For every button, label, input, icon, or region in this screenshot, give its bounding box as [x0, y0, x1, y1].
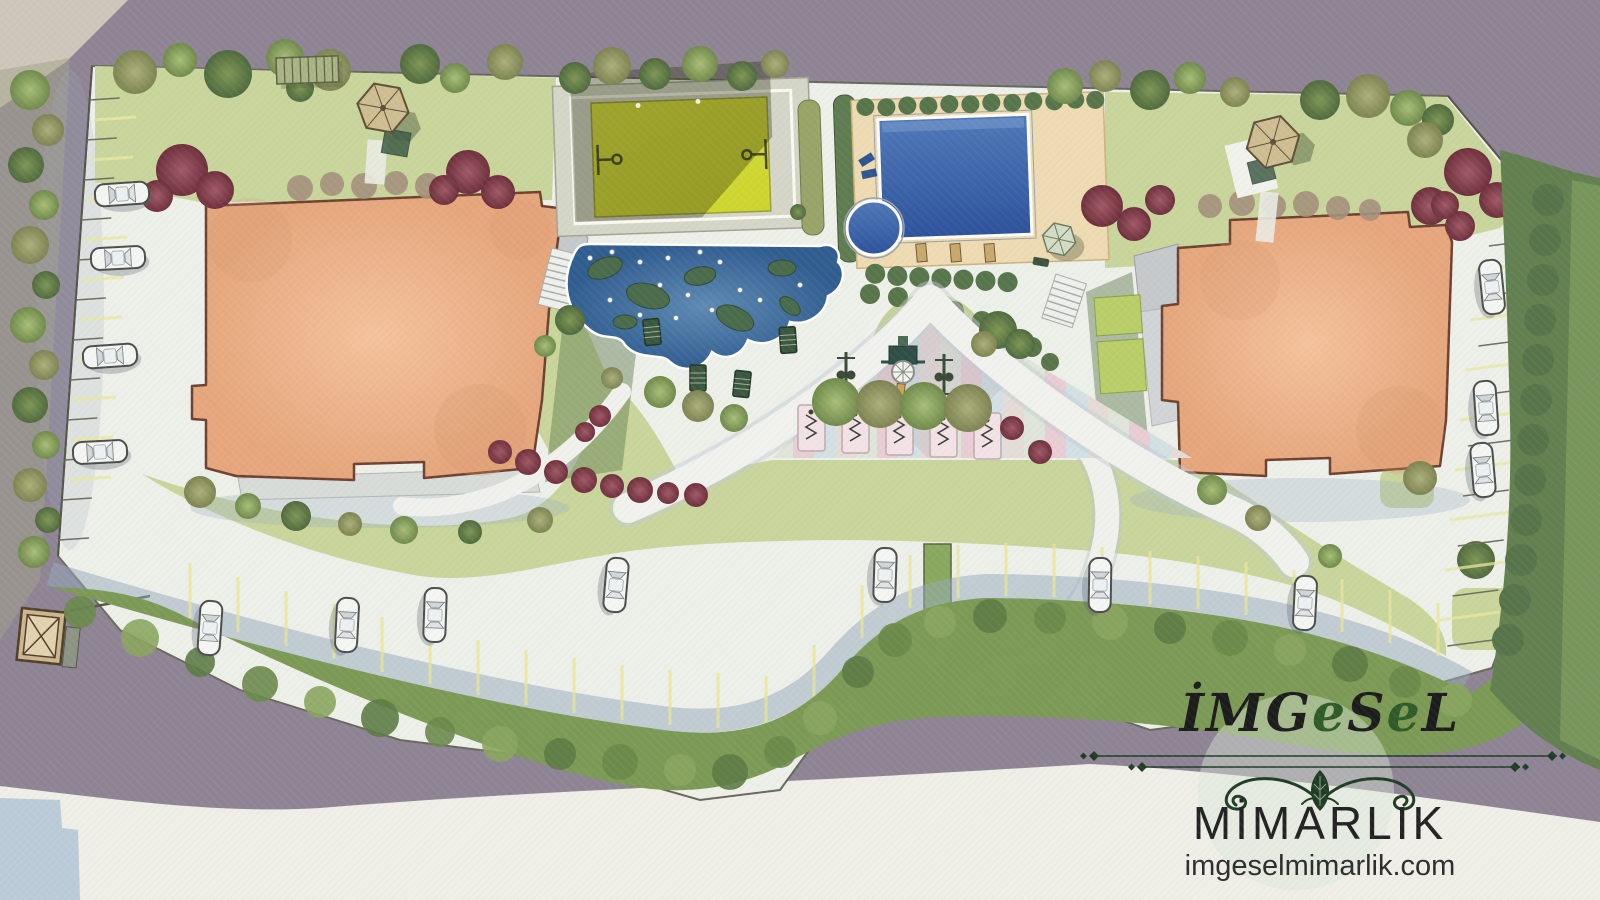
logo-title-part: İMG	[1180, 683, 1312, 744]
logo-title-part: S	[1347, 683, 1387, 744]
firm-logo: İMGeSeL MİMARLIK imgeselmimarlik.com	[1040, 688, 1600, 900]
site-plan-canvas: İMGeSeL MİMARLIK imgeselmimarlik.com	[0, 0, 1600, 900]
kids-pool	[844, 198, 904, 258]
logo-title: İMGeSeL	[1040, 688, 1600, 740]
pergola	[276, 56, 343, 89]
logo-title-part: e	[1312, 683, 1347, 744]
logo-title-part: L	[1422, 683, 1461, 744]
basketball-court	[552, 60, 814, 237]
logo-title-part: e	[1387, 683, 1422, 744]
logo-subtitle: MİMARLIK	[1040, 800, 1600, 846]
logo-website: imgeselmimarlik.com	[1040, 852, 1600, 881]
